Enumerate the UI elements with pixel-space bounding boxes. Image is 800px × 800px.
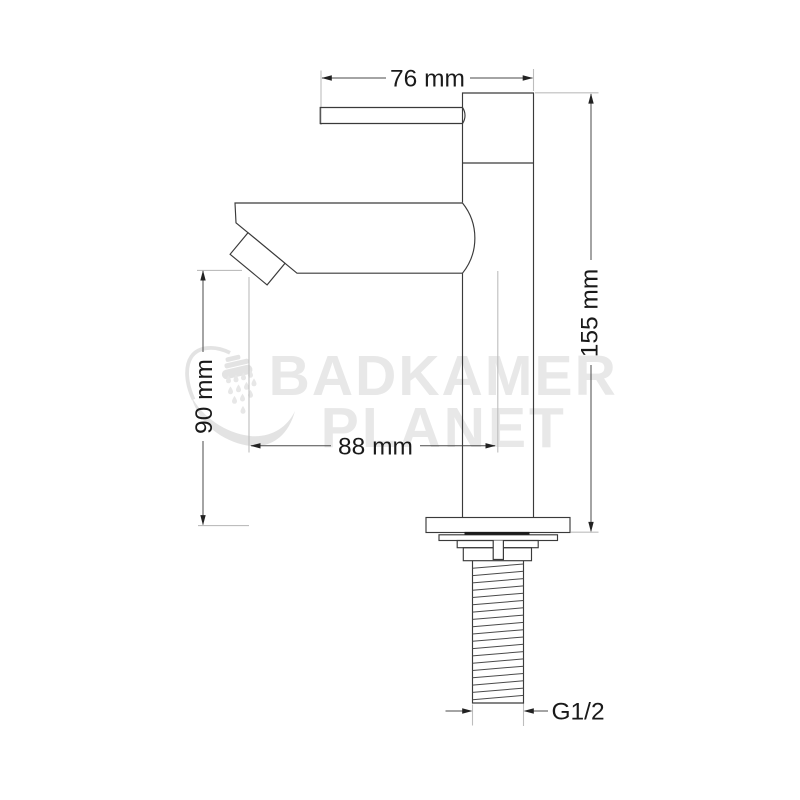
svg-text:G1/2: G1/2 [552,699,605,726]
svg-text:88 mm: 88 mm [338,433,413,460]
svg-text:90 mm: 90 mm [191,359,218,434]
svg-text:155 mm: 155 mm [576,269,603,358]
svg-text:76 mm: 76 mm [390,66,465,93]
